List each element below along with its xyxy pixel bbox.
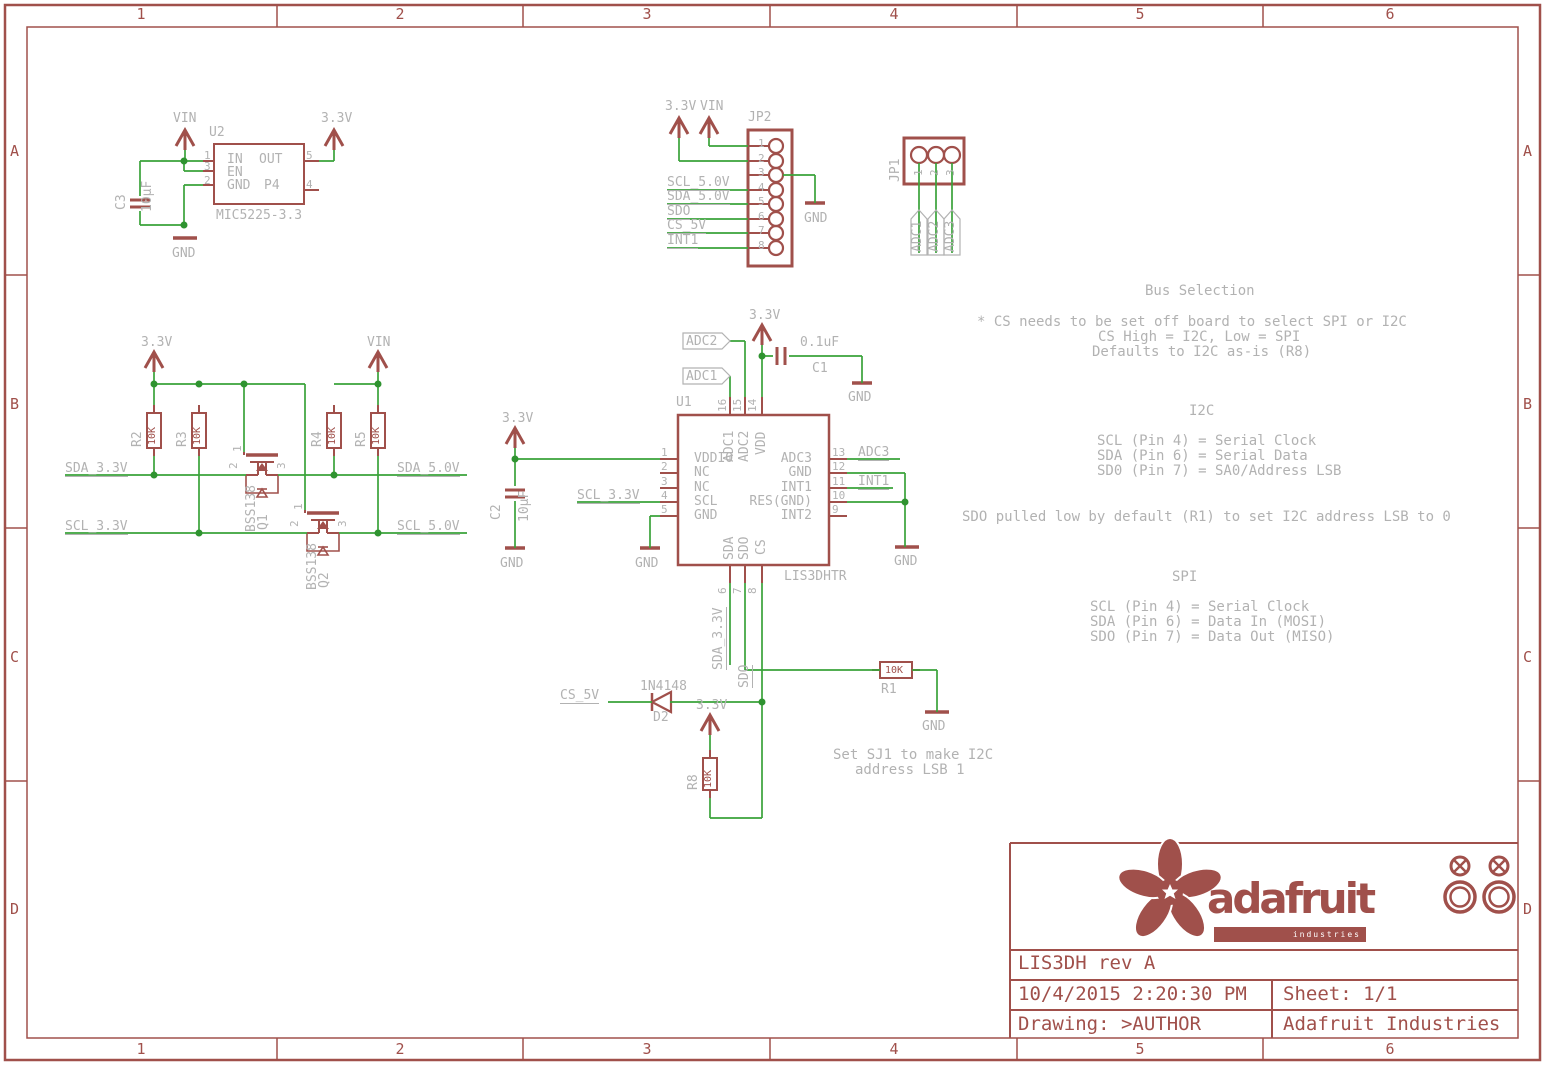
u1-pin-num: 4	[661, 490, 668, 501]
u1-pin-num: 13	[832, 447, 845, 458]
sj1-note-line1: Set SJ1 to make I2C	[833, 748, 993, 762]
titleblock-title: LIS3DH rev A	[1018, 954, 1155, 973]
q2-ref: Q2	[318, 572, 331, 588]
jp2-pin-num: 1	[758, 138, 765, 149]
d2-ref: D2	[653, 711, 669, 724]
spi-note-1: SCL (Pin 4) = Serial Clock	[1090, 600, 1309, 614]
frame-row-label: B	[10, 397, 19, 412]
u1-pin-num: 16	[717, 399, 728, 412]
c2-v33-arrow	[506, 428, 524, 448]
u1-pin-num: 11	[832, 476, 845, 487]
v33-arrow	[325, 130, 343, 150]
u1-pin-num: 2	[661, 461, 668, 472]
jp2-vin-arrow	[700, 118, 718, 138]
gnd-label: GND	[500, 557, 523, 570]
frame-col-label: 2	[385, 1042, 415, 1057]
jp2-pin-num: 2	[758, 153, 765, 164]
bus-note-2: CS High = I2C, Low = SPI	[1098, 330, 1300, 344]
q1-pin-num: 2	[228, 462, 239, 469]
frame-col-label: 5	[1125, 1042, 1155, 1057]
jp2-pin-num: 8	[758, 240, 765, 251]
frame-col-label: 4	[879, 7, 909, 22]
v33-net-label: 3.3V	[321, 112, 352, 125]
u1-pin-num: 6	[717, 587, 728, 594]
sj1-note-line2: address LSB 1	[855, 763, 965, 777]
u2-part: MIC5225-3.3	[216, 209, 302, 222]
net-label-scl33: SCL_3.3V	[65, 520, 128, 535]
net-label-sda5: SDA_5.0V	[667, 190, 730, 205]
u1-pin-num: 9	[832, 504, 839, 515]
jp1-pin-num: 1	[913, 169, 924, 176]
u1-pin-name: SDA	[723, 537, 736, 560]
frame-row-label: B	[1523, 397, 1532, 412]
r1-ref: R1	[881, 683, 897, 696]
u1-pin-name: RES(GND)	[742, 495, 812, 508]
u1-pin-num: 12	[832, 461, 845, 472]
titleblock-company: Adafruit Industries	[1283, 1015, 1500, 1034]
wires	[65, 138, 952, 818]
d2-diode	[652, 692, 671, 712]
u1-pin-name: SCL	[694, 495, 717, 508]
u1-ref: U1	[676, 396, 692, 409]
sdo-pullup-note: SDO pulled low by default (R1) to set I2…	[962, 510, 1451, 524]
u1-pin-num: 14	[747, 399, 758, 412]
r1-value: 10K	[885, 666, 903, 676]
shifter-v33-arrow	[145, 352, 163, 372]
net-label-sdo: SDO	[738, 665, 753, 688]
u1-pin-name: ADC1	[723, 431, 736, 462]
net-label-scl33: SCL_3.3V	[577, 489, 640, 504]
u1-pin-name: GND	[694, 509, 717, 522]
net-label-sda33: SDA_3.3V	[712, 607, 727, 670]
gnd-label: GND	[894, 555, 917, 568]
frame-col-label: 5	[1125, 7, 1155, 22]
mounting-marks	[1445, 857, 1514, 912]
r4-value: 10K	[328, 427, 338, 445]
net-label-adc3: ADC3	[858, 446, 889, 461]
jp1-pin-num: 2	[929, 169, 940, 176]
u2-pin-name: P4	[264, 179, 280, 192]
r4-ref: R4	[311, 431, 324, 447]
u2-pin-name: OUT	[259, 153, 282, 166]
v33-net-label: 3.3V	[696, 699, 727, 712]
lower-wires	[608, 583, 937, 818]
gnd-label: GND	[172, 247, 195, 260]
u1-pin-num: 15	[732, 399, 743, 412]
c1-gnd-symbols	[852, 383, 919, 547]
u1-pin-num: 1	[661, 447, 668, 458]
u1-pin-name: SDO	[738, 537, 751, 560]
net-label-adc1: ADC1	[686, 370, 717, 383]
jp1-symbols	[904, 138, 964, 184]
frame-col-label: 4	[879, 1042, 909, 1057]
u1-pin-num: 7	[732, 587, 743, 594]
shifter-vin-arrow	[369, 352, 387, 372]
jp1-ref: JP1	[889, 159, 902, 182]
frame-col-label: 2	[385, 7, 415, 22]
vin-net-label: VIN	[700, 100, 723, 113]
q1-ref: Q1	[257, 514, 270, 530]
v33-net-label: 3.3V	[502, 412, 533, 425]
jp2-v33-arrow	[670, 118, 688, 138]
r5-ref: R5	[355, 431, 368, 447]
q1-pin-num: 1	[232, 445, 243, 452]
r8-ref: R8	[687, 774, 700, 790]
jp2-pin-num: 5	[758, 196, 765, 207]
titleblock-drawing: Drawing: >AUTHOR	[1018, 1015, 1201, 1034]
net-label-scl50: SCL_5.0V	[397, 520, 460, 535]
adafruit-wordmark-sub: industries	[1293, 930, 1361, 939]
junction-dots	[151, 158, 909, 706]
jp2-pin-circles	[769, 139, 783, 255]
u1-pin-name: ADC3	[742, 452, 812, 465]
gnd-label: GND	[635, 557, 658, 570]
gnd-label: GND	[848, 391, 871, 404]
net-label-cs5: CS_5V	[560, 689, 599, 704]
q2-pin-num: 2	[289, 520, 300, 527]
jp2-ref: JP2	[748, 111, 771, 124]
net-label-adc1: ADC1	[911, 221, 924, 252]
frame-row-label: D	[1523, 902, 1532, 917]
frame-row-label: C	[1523, 650, 1532, 665]
net-label-sda33: SDA_3.3V	[65, 462, 128, 477]
spi-note-2: SDA (Pin 6) = Data In (MOSI)	[1090, 615, 1326, 629]
jp2-pin-num: 7	[758, 225, 765, 236]
q2-pin-num: 1	[293, 503, 304, 510]
schematic-sheet: 1 2 3 4 5 6 1 2 3 4 5 6 A B C D A B C D …	[0, 0, 1545, 1065]
u1-pin-name: INT1	[742, 481, 812, 494]
r8-v33-arrow	[701, 715, 719, 735]
vdd-v33-arrow	[753, 325, 771, 345]
frame-col-label: 3	[632, 7, 662, 22]
u2-pin-num: 3	[204, 161, 211, 172]
frame-col-label: 3	[632, 1042, 662, 1057]
c2-ref: C2	[490, 504, 503, 520]
bus-selection-title: Bus Selection	[1145, 284, 1255, 298]
net-label-adc2: ADC2	[928, 221, 941, 252]
i2c-note-1: SCL (Pin 4) = Serial Clock	[1097, 434, 1316, 448]
adafruit-wordmark: adafruit	[1207, 878, 1373, 920]
u1-pin-name: NC	[694, 466, 710, 479]
u2-pin-num: 5	[306, 150, 313, 161]
d2-part: 1N4148	[640, 680, 687, 693]
u1-pin-num: 8	[747, 587, 758, 594]
r5-value: 10K	[372, 427, 382, 445]
u1-pin-num: 10	[832, 490, 845, 501]
c1-value: 0.1uF	[800, 336, 839, 349]
frame-row-label: D	[10, 902, 19, 917]
r3-ref: R3	[176, 431, 189, 447]
c2-value: 10µF	[518, 491, 531, 522]
vin-net-label: VIN	[367, 336, 390, 349]
i2c-title: I2C	[1189, 404, 1214, 418]
bus-note-3: Defaults to I2C as-is (R8)	[1092, 345, 1311, 359]
v33-net-label: 3.3V	[749, 309, 780, 322]
net-label-sda50: SDA_5.0V	[397, 462, 460, 477]
frame-col-label: 1	[126, 1042, 156, 1057]
spi-title: SPI	[1172, 570, 1197, 584]
u1-pin-name: NC	[694, 481, 710, 494]
u2-pin-num: 4	[306, 179, 313, 190]
c3-ref: C3	[115, 194, 128, 210]
u1-pin-name: GND	[742, 466, 812, 479]
c1-capacitor	[777, 347, 785, 365]
u1-pin-name: VDD	[755, 432, 768, 455]
u1-pin-num: 5	[661, 504, 668, 515]
jp1-pin-num: 3	[945, 169, 956, 176]
vin-arrow	[176, 130, 194, 150]
adafruit-wordmark-bar: industries	[1214, 927, 1366, 942]
u1-pin-name: CS	[755, 539, 768, 555]
titleblock-date: 10/4/2015 2:20:30 PM	[1018, 985, 1247, 1004]
i2c-note-3: SD0 (Pin 7) = SA0/Address LSB	[1097, 464, 1341, 478]
net-label-int1: INT1	[858, 475, 889, 490]
jp2-pin-num: 3	[758, 167, 765, 178]
u2-pin-num: 2	[204, 175, 211, 186]
r2-value: 10K	[148, 427, 158, 445]
gnd-label: GND	[804, 212, 827, 225]
u1-pin-name: ADC2	[738, 431, 751, 462]
frame-row-label: C	[10, 650, 19, 665]
titleblock-sheet: Sheet: 1/1	[1283, 985, 1397, 1004]
levelshifter-wires	[65, 372, 467, 533]
frame-row-label: A	[1523, 144, 1532, 159]
u2-pin-name: GND	[227, 179, 250, 192]
i2c-note-2: SDA (Pin 6) = Serial Data	[1097, 449, 1308, 463]
bus-note-1: * CS needs to be set off board to select…	[977, 315, 1407, 329]
gnd-label: GND	[922, 720, 945, 733]
q1-pin-num: 3	[276, 462, 287, 469]
frame-row-label: A	[10, 144, 19, 159]
v33-net-label: 3.3V	[141, 336, 172, 349]
r3-value: 10K	[193, 427, 203, 445]
vin-net-label: VIN	[173, 112, 196, 125]
frame-col-label: 1	[126, 7, 156, 22]
frame-col-label: 6	[1375, 7, 1405, 22]
spi-note-3: SDO (Pin 7) = Data Out (MISO)	[1090, 630, 1334, 644]
c1-ref: C1	[812, 362, 828, 375]
net-label-adc2: ADC2	[686, 335, 717, 348]
u1-part: LIS3DHTR	[784, 570, 847, 583]
jp2-pin-num: 6	[758, 211, 765, 222]
q2-pin-num: 3	[337, 520, 348, 527]
net-label-cs5: CS_5V	[667, 219, 706, 234]
r2-ref: R2	[131, 431, 144, 447]
u2-ref: U2	[209, 126, 225, 139]
net-label-adc3: ADC3	[944, 221, 957, 252]
jp2-pin-num: 4	[758, 182, 765, 193]
c3-value: 10µF	[141, 181, 154, 212]
frame-col-label: 6	[1375, 1042, 1405, 1057]
u1-pin-name: INT2	[742, 509, 812, 522]
net-label-int1: INT1	[667, 234, 698, 249]
u1-pin-num: 3	[661, 476, 668, 487]
r8-value: 10K	[704, 770, 714, 788]
v33-net-label: 3.3V	[665, 100, 696, 113]
